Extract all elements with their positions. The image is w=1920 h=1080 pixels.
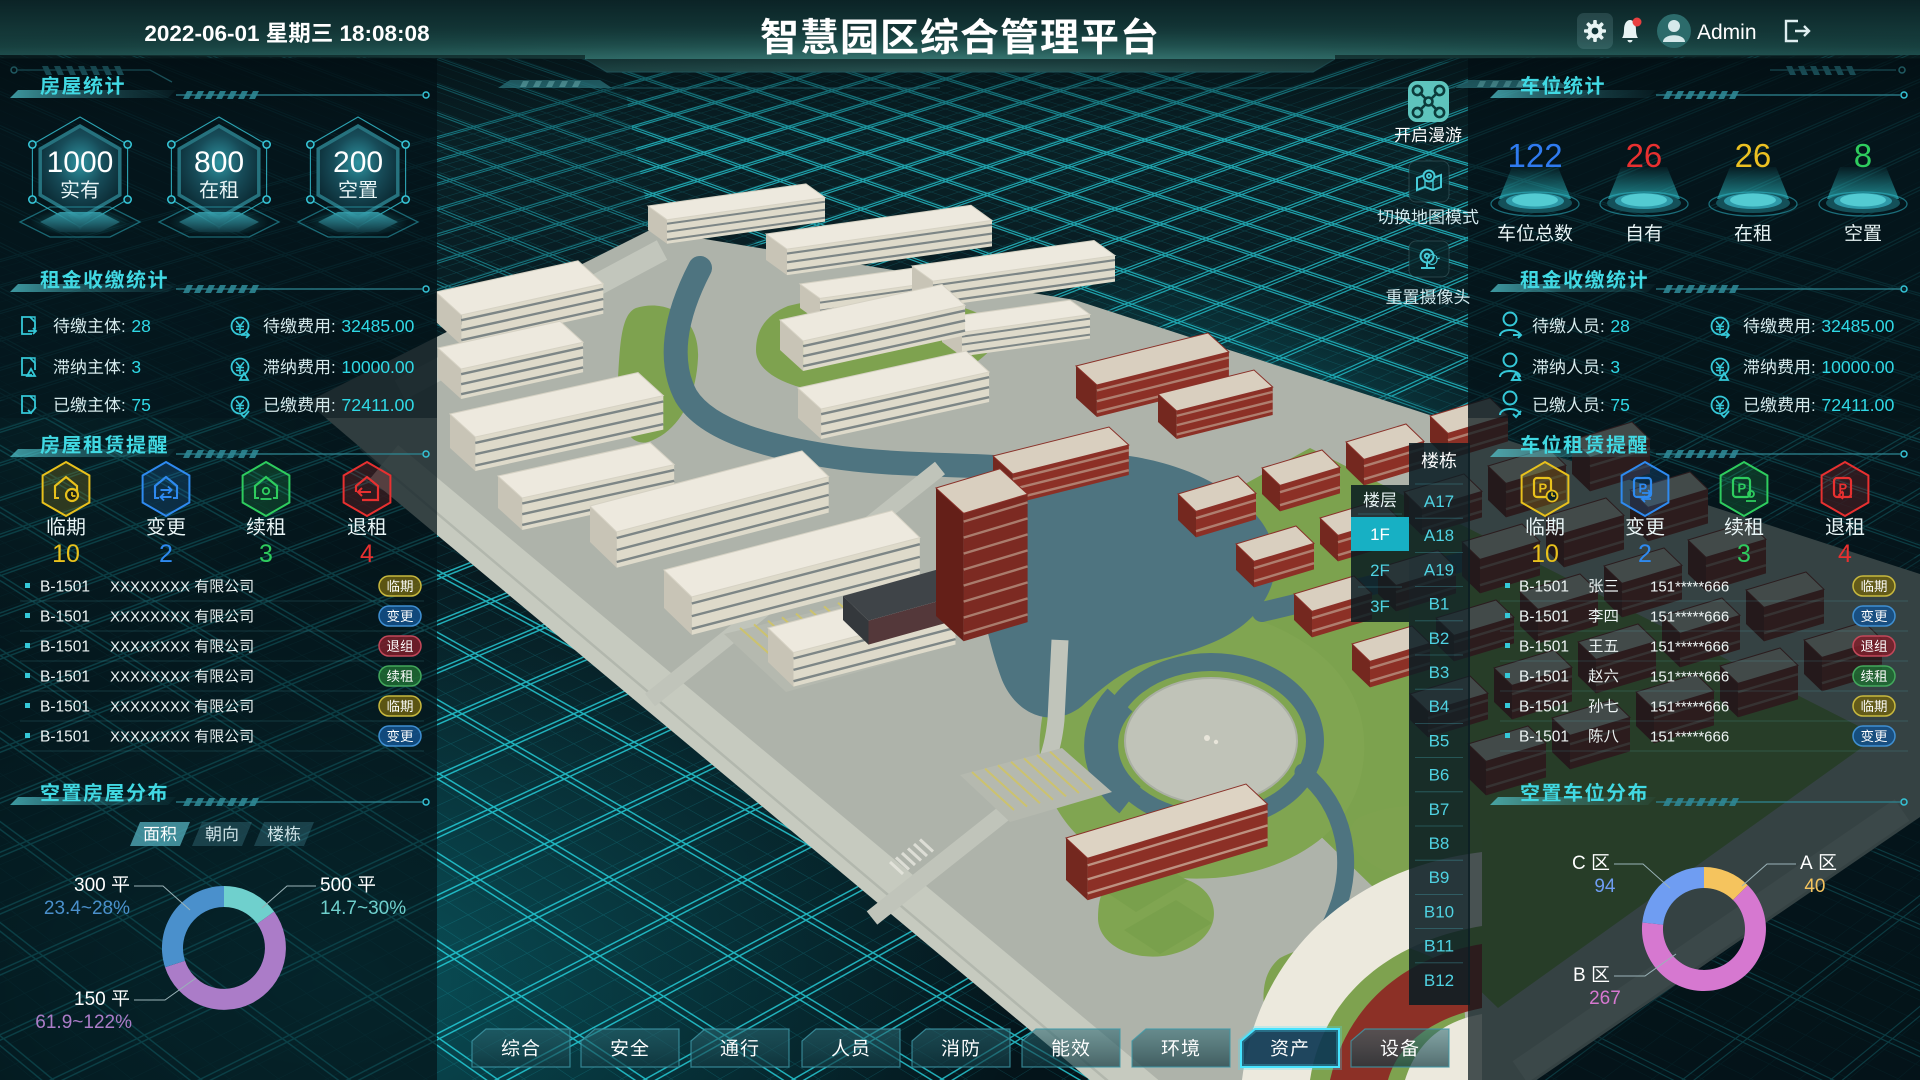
svg-text:B-1501: B-1501 (40, 669, 90, 686)
svg-text:151*****666: 151*****666 (1650, 729, 1729, 746)
svg-text:200: 200 (333, 146, 383, 179)
svg-text:800: 800 (194, 146, 244, 179)
svg-text:4: 4 (360, 540, 374, 568)
svg-text:267: 267 (1589, 988, 1621, 1009)
svg-text:A17: A17 (1424, 492, 1454, 511)
svg-text:3: 3 (1737, 540, 1751, 568)
svg-text:2: 2 (1638, 540, 1652, 568)
svg-text::: : (1811, 317, 1816, 336)
svg-text:B-1501: B-1501 (40, 699, 90, 716)
svg-text:10: 10 (52, 540, 80, 568)
svg-text:XXXXXXXX: XXXXXXXX (110, 609, 190, 626)
svg-text::: : (1600, 317, 1605, 336)
svg-text:B-1501: B-1501 (1519, 699, 1569, 716)
svg-text:26: 26 (1626, 137, 1663, 174)
svg-text:151*****666: 151*****666 (1650, 669, 1729, 686)
svg-text:XXXXXXXX: XXXXXXXX (110, 579, 190, 596)
svg-text:Admin: Admin (1697, 21, 1757, 44)
svg-text::: : (331, 317, 336, 336)
svg-text:32485.00: 32485.00 (1821, 316, 1894, 336)
svg-text:72411.00: 72411.00 (341, 395, 414, 415)
svg-text:B-1501: B-1501 (40, 729, 90, 746)
svg-text:75: 75 (1610, 395, 1630, 415)
svg-text:151*****666: 151*****666 (1650, 579, 1729, 596)
svg-text:151*****666: 151*****666 (1650, 609, 1729, 626)
svg-text::: : (331, 396, 336, 415)
svg-text:B9: B9 (1429, 868, 1450, 887)
svg-text:B12: B12 (1424, 971, 1454, 990)
svg-text:B-1501: B-1501 (40, 639, 90, 656)
svg-text:B-1501: B-1501 (1519, 639, 1569, 656)
svg-text:B3: B3 (1429, 663, 1450, 682)
svg-text:B2: B2 (1429, 629, 1450, 648)
svg-text:32485.00: 32485.00 (341, 316, 414, 336)
svg-text::: : (121, 396, 126, 415)
svg-text:28: 28 (1610, 316, 1630, 336)
svg-text:B10: B10 (1424, 902, 1454, 921)
svg-text:B11: B11 (1424, 937, 1454, 956)
svg-text:26: 26 (1735, 137, 1772, 174)
svg-text:1F: 1F (1370, 525, 1390, 544)
svg-text::: : (1600, 358, 1605, 377)
svg-text:10000.00: 10000.00 (341, 357, 414, 377)
svg-text:C: C (1572, 853, 1586, 874)
svg-text:18:08:08: 18:08:08 (340, 21, 430, 46)
svg-text:B6: B6 (1429, 766, 1450, 785)
svg-text::: : (121, 317, 126, 336)
svg-text::: : (331, 358, 336, 377)
svg-text:94: 94 (1594, 876, 1616, 897)
svg-text:B-1501: B-1501 (1519, 729, 1569, 746)
svg-text:28: 28 (131, 316, 151, 336)
svg-text:XXXXXXXX: XXXXXXXX (110, 669, 190, 686)
svg-text:P: P (1738, 481, 1747, 496)
svg-text:3F: 3F (1370, 597, 1390, 616)
svg-text:61.9~122%: 61.9~122% (35, 1012, 132, 1033)
svg-text::: : (1811, 396, 1816, 415)
svg-text:3: 3 (131, 357, 141, 377)
svg-text:B-1501: B-1501 (1519, 669, 1569, 686)
svg-text:XXXXXXXX: XXXXXXXX (110, 729, 190, 746)
svg-text:151*****666: 151*****666 (1650, 639, 1729, 656)
svg-text:10000.00: 10000.00 (1821, 357, 1894, 377)
svg-text:2022-06-01: 2022-06-01 (144, 21, 259, 46)
svg-text:151*****666: 151*****666 (1650, 699, 1729, 716)
svg-text::: : (1811, 358, 1816, 377)
svg-text:1000: 1000 (47, 146, 114, 179)
svg-text:B7: B7 (1429, 800, 1450, 819)
svg-text:14.7~30%: 14.7~30% (320, 898, 406, 919)
svg-text:B-1501: B-1501 (1519, 609, 1569, 626)
svg-text:300: 300 (74, 875, 106, 896)
svg-text:122: 122 (1508, 137, 1563, 174)
svg-text:3: 3 (1610, 357, 1620, 377)
svg-text:3: 3 (259, 540, 273, 568)
svg-text:B5: B5 (1429, 731, 1450, 750)
svg-text:10: 10 (1531, 540, 1559, 568)
svg-text:B-1501: B-1501 (40, 609, 90, 626)
svg-text:4: 4 (1838, 540, 1852, 568)
svg-text::: : (1600, 396, 1605, 415)
svg-text:8: 8 (1854, 137, 1872, 174)
svg-text:B: B (1573, 965, 1586, 986)
svg-text:40: 40 (1804, 876, 1825, 897)
svg-text:2: 2 (159, 540, 173, 568)
svg-text:2F: 2F (1370, 561, 1390, 580)
svg-text:75: 75 (131, 395, 151, 415)
svg-text:P: P (1539, 481, 1548, 496)
svg-text:B-1501: B-1501 (40, 579, 90, 596)
svg-text:150: 150 (74, 989, 106, 1010)
svg-text:72411.00: 72411.00 (1821, 395, 1894, 415)
svg-text:B8: B8 (1429, 834, 1450, 853)
svg-text:23.4~28%: 23.4~28% (44, 898, 130, 919)
svg-text:B1: B1 (1429, 595, 1450, 614)
svg-text:XXXXXXXX: XXXXXXXX (110, 699, 190, 716)
svg-text:XXXXXXXX: XXXXXXXX (110, 639, 190, 656)
svg-text:B4: B4 (1429, 697, 1450, 716)
svg-text::: : (121, 358, 126, 377)
svg-text:A: A (1800, 853, 1813, 874)
svg-text:500: 500 (320, 875, 352, 896)
svg-text:A19: A19 (1424, 560, 1454, 579)
svg-text:A18: A18 (1424, 526, 1454, 545)
svg-text:B-1501: B-1501 (1519, 579, 1569, 596)
